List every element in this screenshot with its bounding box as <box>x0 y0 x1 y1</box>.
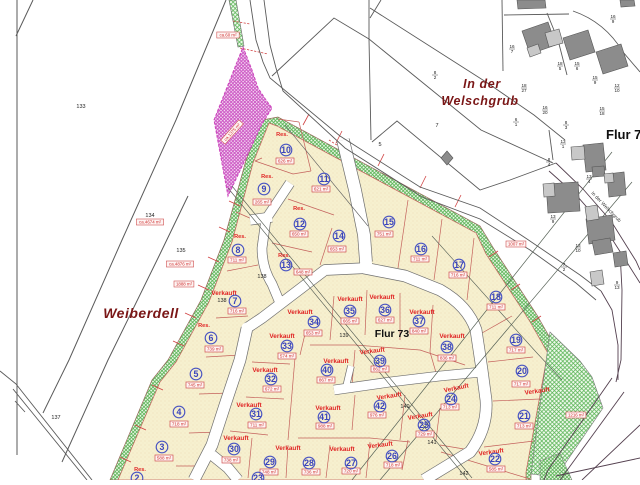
svg-text:Res.: Res. <box>293 206 305 212</box>
svg-text:140: 140 <box>400 404 409 410</box>
svg-text:9: 9 <box>612 19 615 24</box>
svg-text:Flur 73: Flur 73 <box>375 328 410 340</box>
svg-text:21: 21 <box>519 411 529 421</box>
svg-text:5: 5 <box>194 369 199 379</box>
svg-text:9: 9 <box>594 80 597 85</box>
svg-text:33: 33 <box>282 341 292 351</box>
svg-text:736 m²: 736 m² <box>304 470 319 475</box>
svg-text:142: 142 <box>459 471 468 477</box>
svg-text:Verkauft: Verkauft <box>315 405 341 412</box>
svg-text:29: 29 <box>265 457 275 467</box>
svg-text:32: 32 <box>266 374 276 384</box>
svg-text:729 m²: 729 m² <box>418 432 433 437</box>
svg-text:134: 134 <box>145 213 154 219</box>
svg-text:665 m²: 665 m² <box>343 319 358 324</box>
svg-text:13: 13 <box>614 285 620 290</box>
svg-text:133: 133 <box>76 104 85 110</box>
svg-text:2: 2 <box>135 473 140 480</box>
svg-text:Res.: Res. <box>198 323 210 329</box>
svg-text:988 m²: 988 m² <box>318 424 333 429</box>
svg-text:6: 6 <box>576 66 579 71</box>
svg-text:23: 23 <box>253 473 263 480</box>
svg-text:Verkauft: Verkauft <box>236 402 262 409</box>
svg-text:Verkauft: Verkauft <box>369 294 395 301</box>
svg-text:40: 40 <box>322 365 332 375</box>
svg-text:716 m²: 716 m² <box>230 309 245 314</box>
svg-text:4: 4 <box>548 162 551 167</box>
svg-text:19: 19 <box>511 335 521 345</box>
svg-text:Verkauft: Verkauft <box>269 333 295 340</box>
svg-text:18: 18 <box>491 292 501 302</box>
svg-text:25: 25 <box>419 420 429 430</box>
svg-text:28: 28 <box>304 458 314 468</box>
svg-text:621 m²: 621 m² <box>314 187 329 192</box>
svg-text:718 m²: 718 m² <box>172 422 187 427</box>
svg-text:34: 34 <box>309 317 319 327</box>
svg-text:588 m²: 588 m² <box>157 456 172 461</box>
svg-text:748 m²: 748 m² <box>262 470 277 475</box>
svg-text:867 m²: 867 m² <box>319 378 334 383</box>
svg-text:626 m²: 626 m² <box>278 159 293 164</box>
svg-text:37: 37 <box>414 316 424 326</box>
svg-text:Verkauft: Verkauft <box>252 367 278 374</box>
svg-text:672 m²: 672 m² <box>265 387 280 392</box>
svg-text:27: 27 <box>521 88 527 93</box>
svg-text:13: 13 <box>281 260 291 270</box>
svg-text:7: 7 <box>435 123 438 129</box>
svg-text:711 m²: 711 m² <box>230 258 244 263</box>
svg-text:627 m²: 627 m² <box>378 318 393 323</box>
svg-text:738 m²: 738 m² <box>224 458 239 463</box>
svg-text:38: 38 <box>442 342 452 352</box>
svg-text:138: 138 <box>217 298 226 304</box>
svg-text:16: 16 <box>416 244 426 254</box>
svg-text:650 m²: 650 m² <box>292 232 307 237</box>
svg-text:840 m²: 840 m² <box>412 329 427 334</box>
svg-text:30: 30 <box>229 444 239 454</box>
svg-text:20: 20 <box>517 366 527 376</box>
svg-text:2: 2 <box>434 75 437 80</box>
svg-text:Verkauft: Verkauft <box>223 435 249 442</box>
svg-text:717 m²: 717 m² <box>509 348 524 353</box>
svg-text:717 m²: 717 m² <box>514 382 529 387</box>
svg-text:26: 26 <box>387 451 397 461</box>
svg-text:11: 11 <box>319 174 328 184</box>
svg-text:1216 m²: 1216 m² <box>568 413 585 418</box>
svg-text:976 m²: 976 m² <box>370 413 385 418</box>
svg-text:24: 24 <box>446 394 456 404</box>
svg-text:716 m²: 716 m² <box>451 273 466 278</box>
svg-text:574 m²: 574 m² <box>280 354 295 359</box>
svg-text:27: 27 <box>346 458 356 468</box>
svg-text:9: 9 <box>552 219 555 224</box>
svg-text:135: 135 <box>176 248 185 254</box>
svg-text:7: 7 <box>511 49 514 54</box>
svg-text:139: 139 <box>339 333 348 339</box>
svg-text:42: 42 <box>375 401 385 411</box>
svg-text:1007 m²: 1007 m² <box>508 242 525 247</box>
svg-text:17: 17 <box>454 260 464 270</box>
svg-text:41: 41 <box>319 412 329 422</box>
svg-text:In der: In der <box>463 77 501 91</box>
svg-text:Verkauft: Verkauft <box>409 309 435 316</box>
svg-text:862 m²: 862 m² <box>373 367 388 372</box>
svg-text:Verkauft: Verkauft <box>287 309 313 316</box>
svg-text:6: 6 <box>209 333 214 343</box>
svg-text:720 m²: 720 m² <box>344 469 359 474</box>
svg-text:137: 137 <box>51 415 60 421</box>
svg-text:31: 31 <box>251 409 261 419</box>
svg-text:18: 18 <box>599 111 605 116</box>
svg-text:585 m²: 585 m² <box>489 467 504 472</box>
svg-text:711 m²: 711 m² <box>489 305 503 310</box>
svg-text:Welschgrub: Welschgrub <box>441 94 518 108</box>
svg-text:ca.60 m²: ca.60 m² <box>219 33 237 38</box>
svg-text:10: 10 <box>614 88 620 93</box>
svg-text:10: 10 <box>575 248 581 253</box>
svg-text:8: 8 <box>236 245 241 255</box>
svg-text:711 m²: 711 m² <box>250 423 264 428</box>
svg-text:ca.4876 m²: ca.4876 m² <box>169 262 192 267</box>
svg-text:141: 141 <box>427 440 436 446</box>
svg-text:Flur 7: Flur 7 <box>606 127 640 142</box>
svg-text:653 m²: 653 m² <box>306 331 321 336</box>
svg-text:35: 35 <box>345 306 355 316</box>
svg-text:36: 36 <box>380 305 390 315</box>
svg-text:5: 5 <box>378 142 381 148</box>
svg-text:138: 138 <box>257 274 266 280</box>
svg-text:22: 22 <box>490 454 500 464</box>
svg-text:713 m²: 713 m² <box>443 405 458 410</box>
svg-text:713 m²: 713 m² <box>517 424 532 429</box>
svg-text:3: 3 <box>565 125 568 130</box>
svg-text:15: 15 <box>384 217 394 227</box>
svg-text:718 m²: 718 m² <box>386 463 401 468</box>
svg-text:648 m²: 648 m² <box>296 270 311 275</box>
svg-text:745 m²: 745 m² <box>188 383 203 388</box>
svg-text:Weiberdell: Weiberdell <box>103 305 179 321</box>
svg-text:Verkauft: Verkauft <box>329 446 355 453</box>
svg-text:10: 10 <box>281 145 291 155</box>
svg-text:5: 5 <box>559 66 562 71</box>
svg-text:711 m²: 711 m² <box>413 257 427 262</box>
svg-text:Res.: Res. <box>276 132 288 138</box>
svg-text:Verkauft: Verkauft <box>439 333 465 340</box>
svg-text:739 m²: 739 m² <box>207 347 222 352</box>
svg-text:20: 20 <box>542 110 548 115</box>
svg-text:ca.4674 m²: ca.4674 m² <box>139 220 162 225</box>
svg-text:1: 1 <box>562 144 565 149</box>
svg-text:4: 4 <box>588 179 591 184</box>
svg-text:751 m²: 751 m² <box>377 232 392 237</box>
svg-text:Res.: Res. <box>261 174 273 180</box>
svg-text:1888 m²: 1888 m² <box>176 282 193 287</box>
svg-text:4: 4 <box>177 407 182 417</box>
svg-text:Verkauft: Verkauft <box>337 296 363 303</box>
svg-text:2: 2 <box>563 267 566 272</box>
svg-text:265 m²: 265 m² <box>255 200 270 205</box>
svg-text:Res.: Res. <box>278 253 290 259</box>
svg-text:9: 9 <box>262 184 267 194</box>
svg-text:1: 1 <box>515 122 518 127</box>
svg-text:12: 12 <box>295 219 305 229</box>
svg-text:Res.: Res. <box>234 234 246 240</box>
svg-text:3: 3 <box>160 442 165 452</box>
svg-text:836 m²: 836 m² <box>440 356 455 361</box>
svg-text:39: 39 <box>375 356 385 366</box>
svg-text:Verkauft: Verkauft <box>275 445 301 452</box>
svg-text:653 m²: 653 m² <box>330 247 345 252</box>
svg-text:7: 7 <box>233 296 238 306</box>
svg-text:14: 14 <box>334 231 344 241</box>
